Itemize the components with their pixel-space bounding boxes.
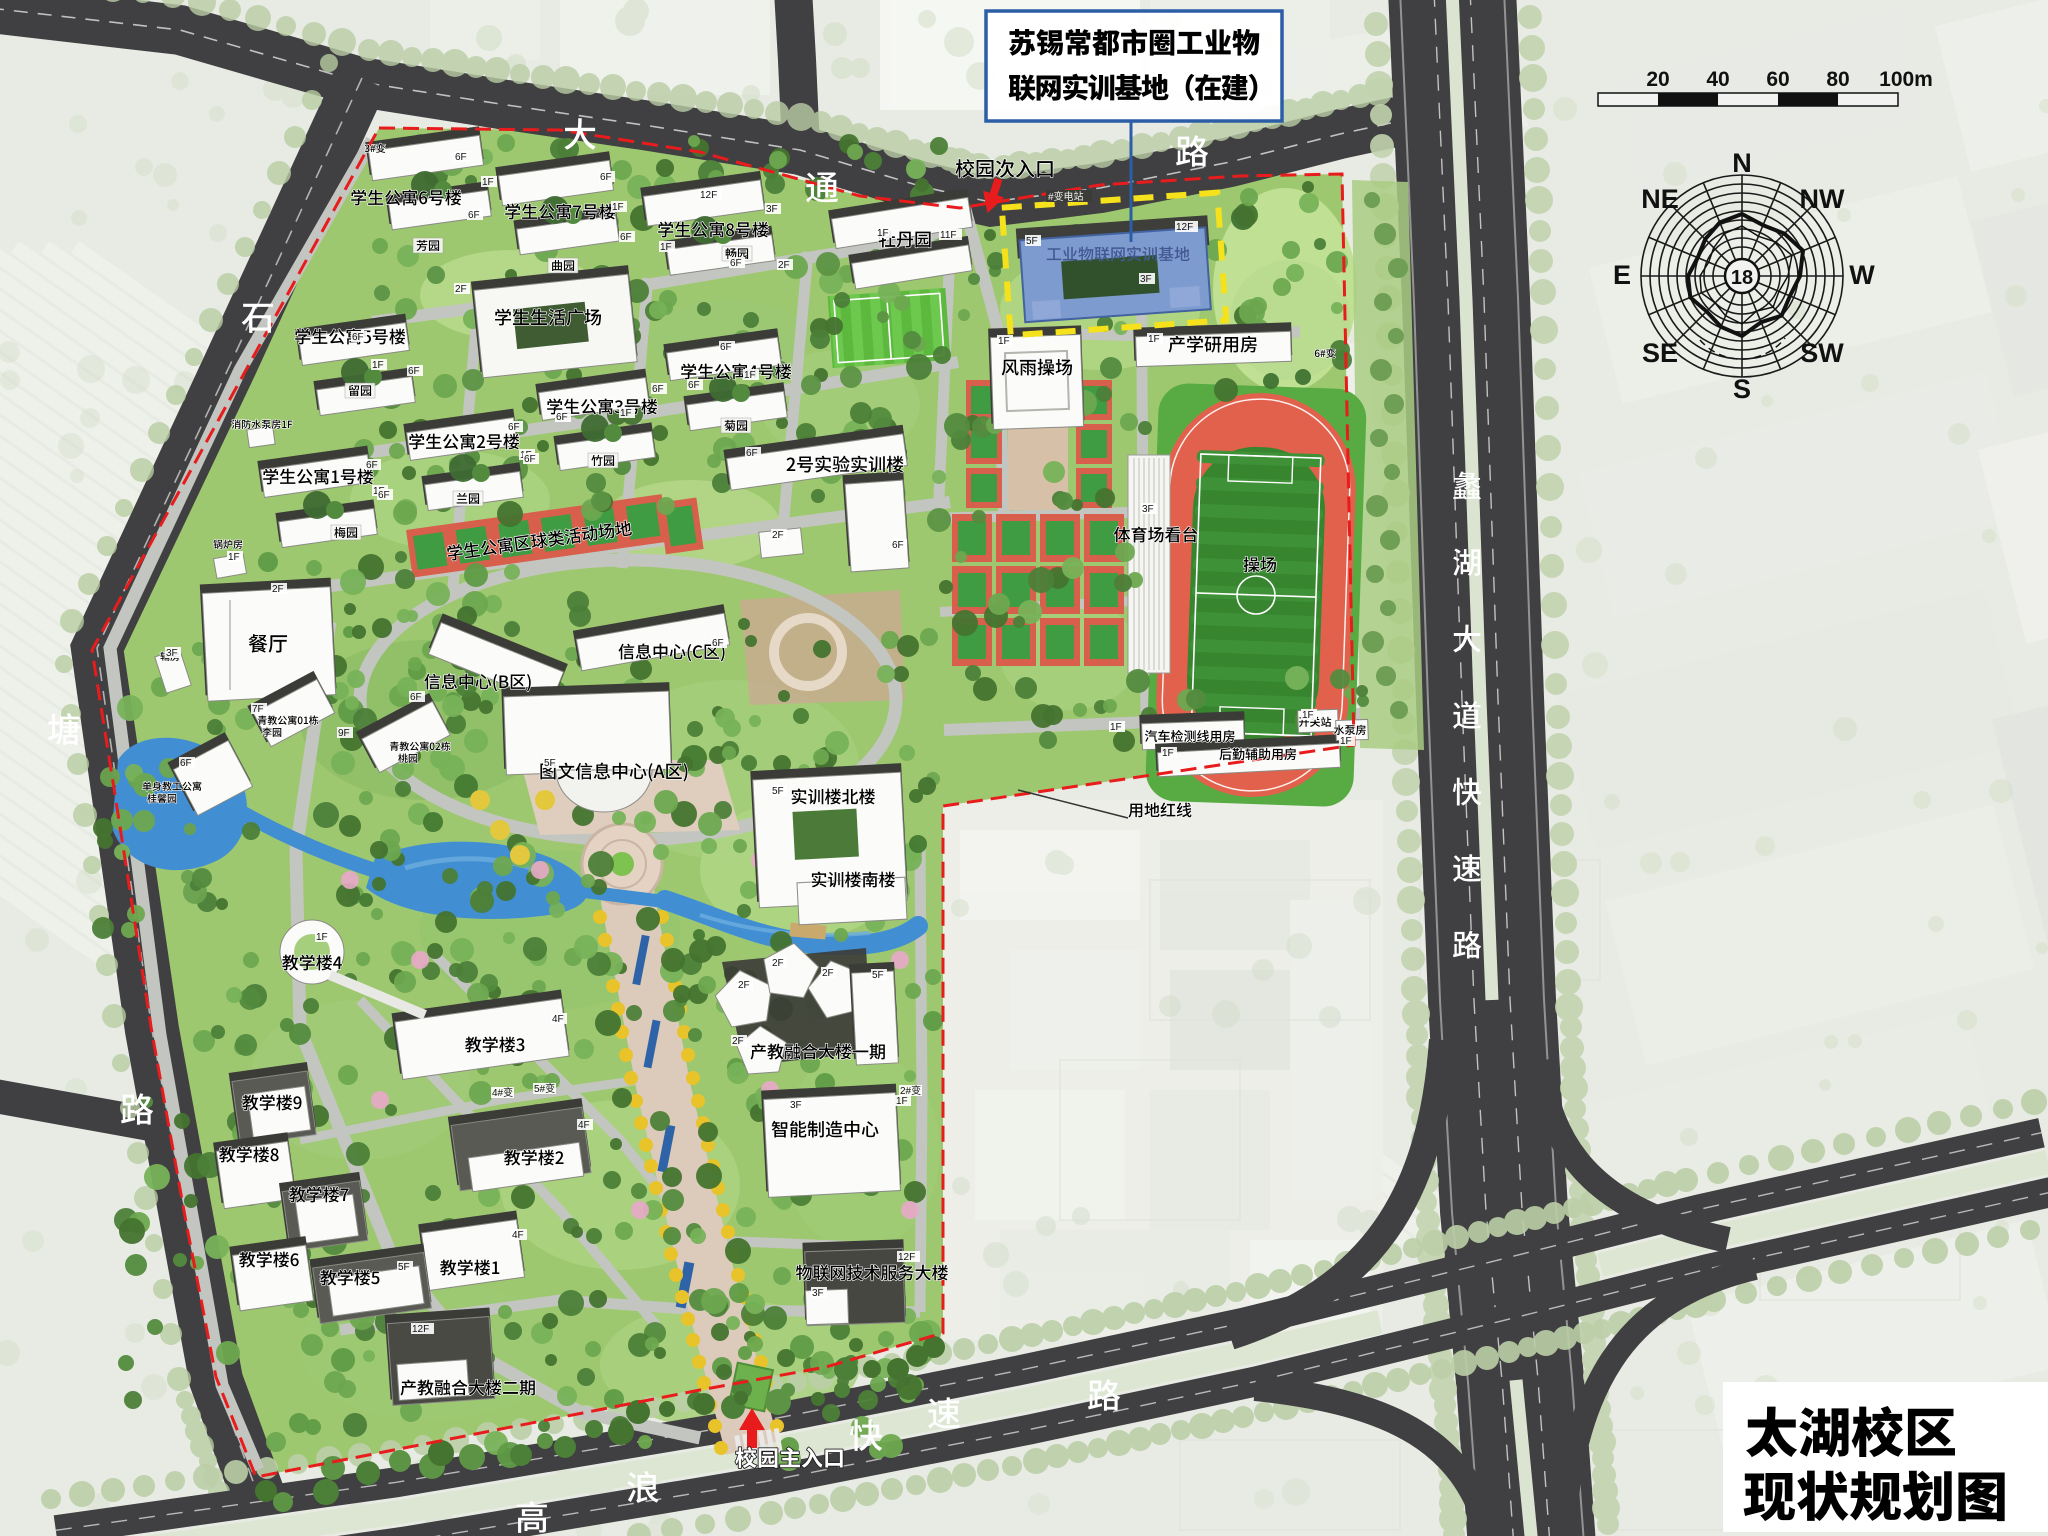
svg-text:SW: SW xyxy=(1800,338,1844,368)
svg-text:6F: 6F xyxy=(892,540,904,551)
svg-text:6F: 6F xyxy=(352,332,364,343)
svg-text:12F: 12F xyxy=(898,1252,915,1263)
svg-text:5#变: 5#变 xyxy=(534,1082,555,1095)
svg-text:6F: 6F xyxy=(730,258,742,269)
svg-text:100m: 100m xyxy=(1879,68,1933,91)
svg-text:2F: 2F xyxy=(738,980,750,991)
svg-text:6F: 6F xyxy=(524,454,536,465)
svg-text:6F: 6F xyxy=(620,232,632,243)
svg-text:6F: 6F xyxy=(410,692,422,703)
svg-text:1F: 1F xyxy=(612,202,624,213)
svg-text:SE: SE xyxy=(1642,338,1678,368)
svg-text:2F: 2F xyxy=(822,968,834,979)
svg-text:3F: 3F xyxy=(790,1100,802,1111)
svg-text:6F: 6F xyxy=(455,152,467,163)
svg-text:6F: 6F xyxy=(600,172,612,183)
svg-text:6F: 6F xyxy=(556,412,568,423)
svg-text:4F: 4F xyxy=(512,1230,524,1241)
svg-text:5F: 5F xyxy=(772,786,784,797)
svg-text:2F: 2F xyxy=(772,958,784,969)
svg-text:4F: 4F xyxy=(552,1014,564,1025)
svg-text:1F: 1F xyxy=(620,408,632,419)
svg-text:1F: 1F xyxy=(998,336,1010,347)
svg-text:N: N xyxy=(1732,148,1752,178)
svg-text:1F: 1F xyxy=(316,932,328,943)
svg-text:2F: 2F xyxy=(455,284,467,295)
svg-text:4#变: 4#变 xyxy=(492,1086,513,1099)
svg-text:5F: 5F xyxy=(398,1262,410,1273)
svg-text:60: 60 xyxy=(1766,68,1789,91)
svg-text:1F: 1F xyxy=(660,242,672,253)
svg-text:1F: 1F xyxy=(744,370,756,381)
svg-text:1F: 1F xyxy=(877,228,889,239)
svg-text:9F: 9F xyxy=(338,728,350,739)
svg-text:3F: 3F xyxy=(766,204,778,215)
svg-text:S: S xyxy=(1733,374,1751,404)
svg-text:2F: 2F xyxy=(772,530,784,541)
svg-text:2F: 2F xyxy=(272,584,284,595)
svg-text:W: W xyxy=(1849,260,1875,290)
svg-text:5F: 5F xyxy=(872,970,884,981)
svg-text:12F: 12F xyxy=(1176,222,1193,233)
svg-text:1F: 1F xyxy=(896,1096,908,1107)
svg-text:18: 18 xyxy=(1731,267,1753,289)
svg-text:#变电站: #变电站 xyxy=(1048,190,1084,203)
svg-text:12F: 12F xyxy=(412,1324,429,1335)
svg-text:6F: 6F xyxy=(746,448,758,459)
svg-text:1F: 1F xyxy=(1340,736,1352,747)
svg-text:6F: 6F xyxy=(508,422,520,433)
svg-text:6F: 6F xyxy=(378,490,390,501)
svg-text:6F: 6F xyxy=(408,366,420,377)
svg-text:1F: 1F xyxy=(1148,334,1160,345)
svg-text:7F: 7F xyxy=(252,704,264,715)
svg-text:6F: 6F xyxy=(688,380,700,391)
svg-text:4F: 4F xyxy=(578,1120,590,1131)
svg-text:5F: 5F xyxy=(1026,236,1038,247)
svg-text:1F: 1F xyxy=(1162,748,1174,759)
svg-text:6F: 6F xyxy=(712,638,724,649)
svg-text:80: 80 xyxy=(1826,68,1849,91)
svg-text:6F: 6F xyxy=(366,460,378,471)
svg-text:6F: 6F xyxy=(652,384,664,395)
svg-text:2F: 2F xyxy=(778,260,790,271)
svg-text:20: 20 xyxy=(1646,68,1669,91)
svg-text:6F: 6F xyxy=(468,210,480,221)
svg-text:E: E xyxy=(1613,260,1631,290)
svg-text:1F: 1F xyxy=(372,360,384,371)
svg-text:40: 40 xyxy=(1706,68,1729,91)
svg-text:3F: 3F xyxy=(1140,274,1152,285)
svg-text:3F: 3F xyxy=(812,1288,824,1299)
svg-text:6F: 6F xyxy=(180,758,192,769)
svg-text:2F: 2F xyxy=(732,1036,744,1047)
svg-text:1F: 1F xyxy=(482,177,494,188)
svg-text:1F: 1F xyxy=(228,552,240,563)
svg-text:1F: 1F xyxy=(1110,722,1122,733)
svg-text:6F: 6F xyxy=(720,342,732,353)
svg-text:3F: 3F xyxy=(166,648,178,659)
svg-text:1F: 1F xyxy=(1302,710,1314,721)
svg-text:11F: 11F xyxy=(940,230,957,241)
svg-text:NE: NE xyxy=(1641,184,1679,214)
svg-text:3F: 3F xyxy=(1142,504,1154,515)
svg-text:NW: NW xyxy=(1800,184,1845,214)
svg-text:5F: 5F xyxy=(544,758,556,769)
svg-text:12F: 12F xyxy=(700,190,717,201)
